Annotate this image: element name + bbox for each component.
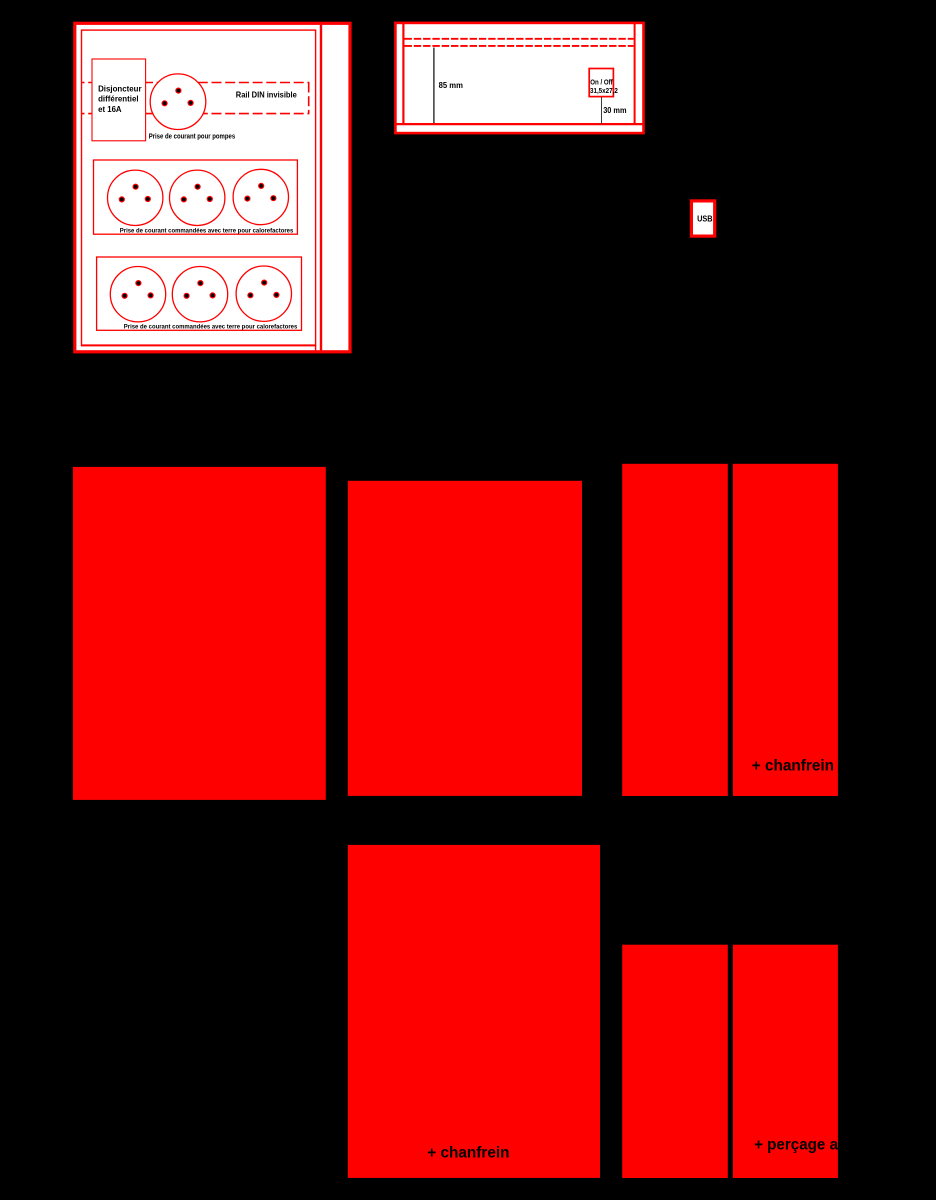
svg-text:+ chanfrein: + chanfrein — [427, 1144, 509, 1161]
svg-text:On / Off: On / Off — [590, 79, 613, 86]
svg-text:+ perçage aération: + perçage aération — [754, 1137, 889, 1154]
svg-text:différentiel: différentiel — [98, 95, 139, 104]
svg-text:Prise de courant pour pompes: Prise de courant pour pompes — [149, 134, 236, 141]
svg-text:Prise de courant commandées av: Prise de courant commandées avec terre p… — [124, 324, 298, 331]
svg-text:Rail DIN invisible: Rail DIN invisible — [236, 91, 297, 100]
svg-text:USB: USB — [697, 214, 713, 223]
svg-text:Disjoncteur: Disjoncteur — [98, 84, 142, 93]
svg-text:85 mm: 85 mm — [439, 80, 463, 90]
svg-text:31,5x27,2: 31,5x27,2 — [590, 88, 618, 95]
svg-text:30 mm: 30 mm — [603, 105, 626, 115]
svg-text:+ chanfrein: + chanfrein — [752, 757, 834, 774]
svg-text:et 16A: et 16A — [98, 105, 122, 114]
svg-text:Prise de courant commandées av: Prise de courant commandées avec terre p… — [120, 227, 294, 234]
